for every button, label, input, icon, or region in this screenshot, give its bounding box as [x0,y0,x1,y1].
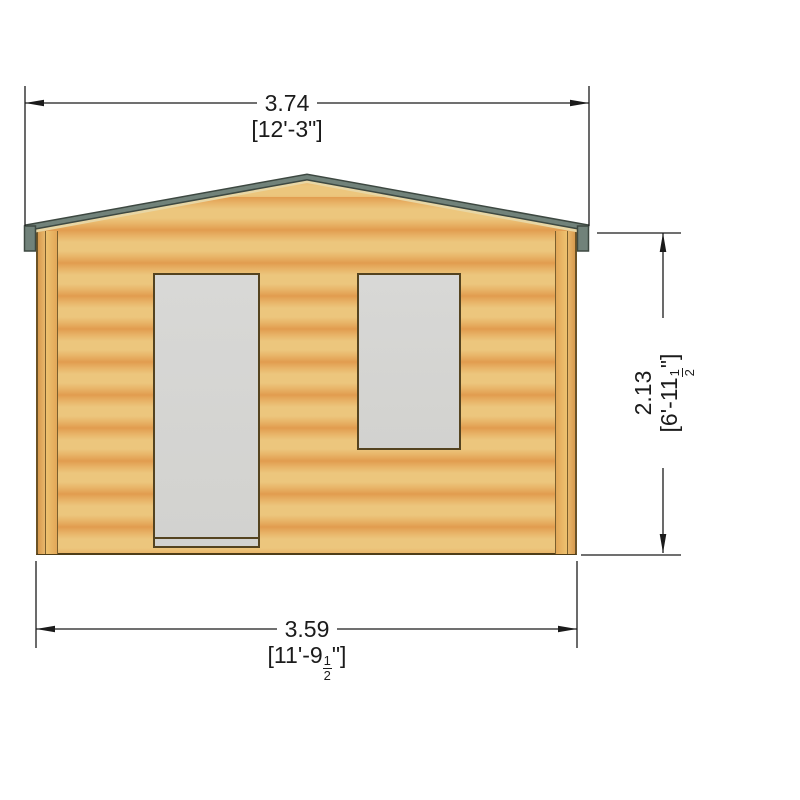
roof-trim [25,177,590,251]
bottom-dimension-imperial: [11'-912"] [207,642,407,682]
bottom-dimension-metric: 3.59 [277,616,338,642]
half-fraction: 12 [668,368,696,377]
right-dimension-imperial: [6'-1112"] [656,318,696,468]
top-dimension-metric: 3.74 [257,90,318,116]
right-dimension-label: 2.13 [6'-1112"] [634,318,692,468]
right-dimension-metric: 2.13 [630,371,656,416]
half-fraction: 12 [323,654,332,682]
bottom-dimension-label: 3.59 [11'-912"] [207,616,407,682]
top-dimension-imperial: [12'-3"] [251,116,322,142]
roof-flap-right [578,226,589,251]
roof-flap-left [25,226,36,251]
cabin-front-elevation-drawing: 3.74 [12'-3"] 3.59 [11'-912"] 2.13 [6'-1… [0,0,800,800]
top-dimension-label: 3.74 [12'-3"] [187,90,387,142]
